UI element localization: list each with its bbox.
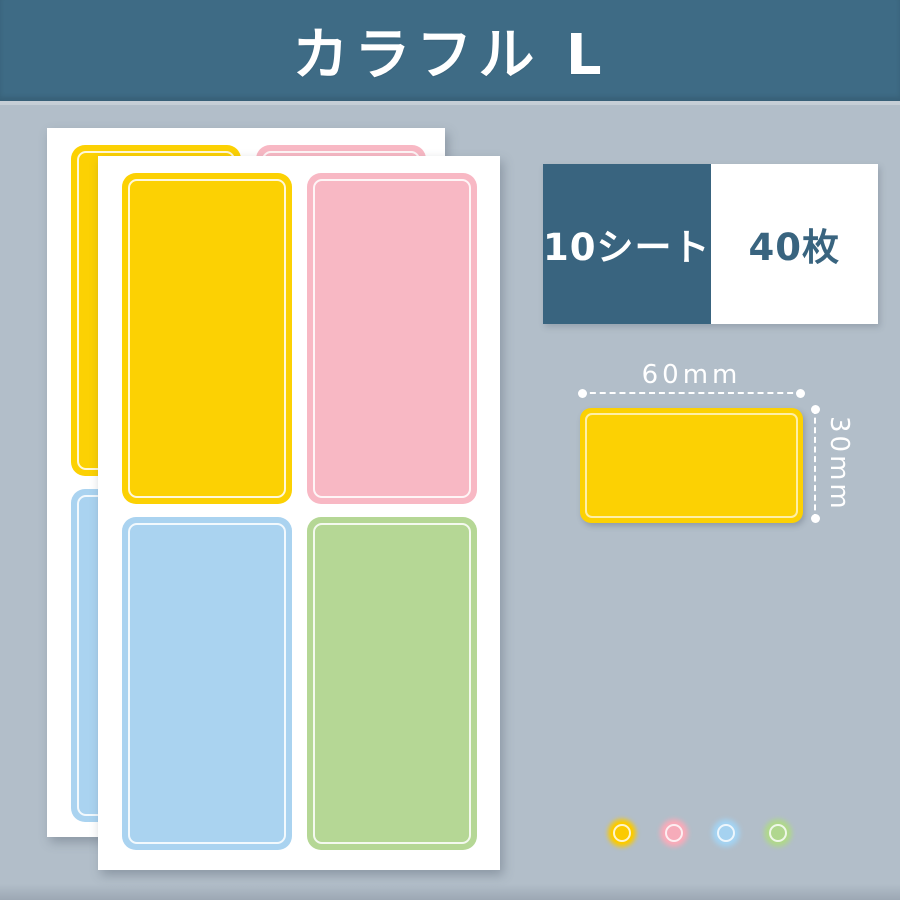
height-dimension-marker: 30mm	[810, 408, 816, 520]
sticker-yellow	[122, 173, 292, 504]
header-divider	[0, 101, 900, 105]
product-image: カラフル L 10シート 40枚 60mm 30mm	[0, 0, 900, 900]
width-dimension-line	[580, 392, 803, 394]
bottom-vignette	[0, 884, 900, 900]
count-badge: 10シート 40枚	[543, 164, 878, 324]
height-dimension-line	[814, 408, 816, 520]
sticker-sheet-front	[98, 156, 500, 870]
color-dot-yellow	[611, 822, 633, 844]
sticker-pink	[307, 173, 477, 504]
color-dot-blue	[715, 822, 737, 844]
sticker-blue	[122, 517, 292, 850]
width-dimension-marker: 60mm	[580, 360, 803, 394]
page-title: カラフル L	[292, 10, 607, 91]
sample-sticker	[580, 408, 803, 523]
header-banner: カラフル L	[0, 0, 900, 101]
width-dimension-label: 60mm	[580, 360, 803, 390]
height-dimension-label: 30mm	[824, 408, 854, 520]
piece-count-label: 40枚	[711, 164, 879, 324]
sticker-green	[307, 517, 477, 850]
color-palette	[611, 822, 789, 844]
sheet-count-label: 10シート	[543, 164, 711, 324]
color-dot-pink	[663, 822, 685, 844]
color-dot-green	[767, 822, 789, 844]
